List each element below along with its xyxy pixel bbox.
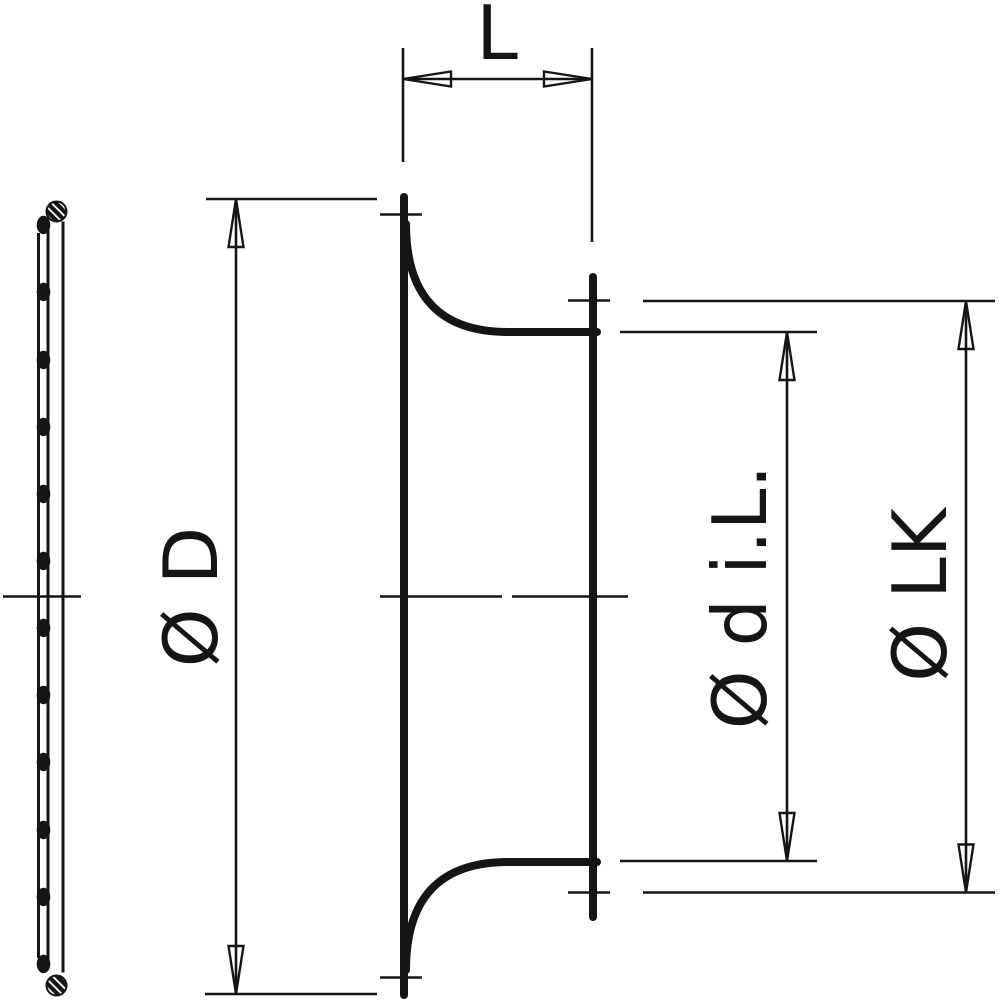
dimension-outer-diameter: Ø D (147, 199, 377, 994)
bolt-hole-dot (37, 753, 51, 771)
bolt-hole-dot (37, 888, 51, 906)
gasket-side-view (37, 202, 67, 996)
dimension-length: L (403, 0, 592, 242)
bolt-hole-dot (37, 552, 51, 570)
bolt-hole-dot (37, 351, 51, 369)
flange-bottom-flare (406, 862, 597, 970)
oring-section-bottom (47, 976, 67, 996)
bolt-hole-dot (37, 686, 51, 704)
bolt-hole-dot (37, 485, 51, 503)
bolt-hole-dot (37, 821, 51, 839)
bolt-hole-dot (37, 955, 51, 973)
bolt-hole-dot (37, 418, 51, 436)
dimension-label-bolt-circle: Ø LK (876, 506, 964, 682)
technical-drawing: L Ø D Ø d i.L. Ø LK (0, 0, 1000, 1000)
dimension-label-inner-diameter: Ø d i.L. (696, 465, 784, 730)
dimension-label-length: L (476, 0, 518, 77)
bolt-hole-dot (37, 283, 51, 301)
oring-section-top (47, 202, 67, 222)
dimension-inner-diameter: Ø d i.L. (620, 332, 817, 861)
dimension-label-outer-diameter: Ø D (147, 527, 235, 668)
flange-top-flare (406, 224, 597, 332)
bolt-hole-dot (37, 619, 51, 637)
